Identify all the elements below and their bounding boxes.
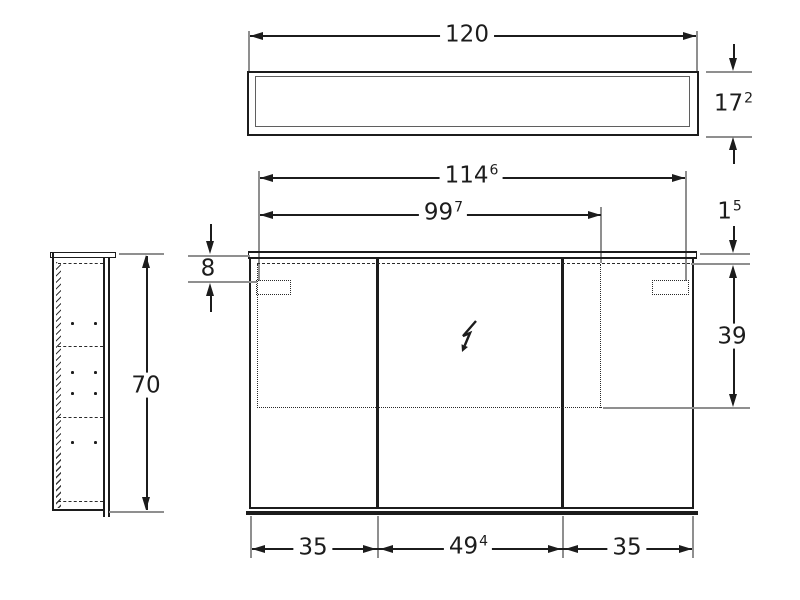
extension-line	[692, 516, 694, 558]
sensor-box-left	[256, 280, 291, 295]
door-divider	[561, 259, 564, 508]
front-cabinet-body	[249, 259, 694, 509]
arrowhead-up-icon	[206, 283, 214, 296]
dimension-line-8	[210, 224, 212, 241]
shelf-line	[58, 263, 103, 264]
extension-line	[377, 516, 379, 558]
shelf-pin-hole	[71, 392, 74, 395]
extension-line	[696, 31, 698, 71]
dim-door-center-label: 494	[444, 534, 492, 559]
arrowhead-down-icon	[729, 240, 737, 253]
shelf-pin-hole	[71, 441, 74, 444]
arrowhead-left-icon	[252, 545, 265, 553]
dimension-line-172	[733, 44, 735, 59]
arrowhead-right-icon	[679, 545, 692, 553]
arrowhead-down-icon	[729, 58, 737, 71]
arrowhead-down-icon	[206, 241, 214, 254]
dim-side-height-label: 70	[126, 373, 165, 398]
extension-line	[188, 281, 257, 283]
arrowhead-right-icon	[683, 32, 696, 40]
shelf-line	[58, 501, 103, 502]
dim-light-width-label: 997	[419, 200, 467, 225]
shelf-pin-hole	[94, 322, 97, 325]
dimension-line-172	[733, 150, 735, 164]
shelf-pin-hole	[94, 441, 97, 444]
dimension-line-8	[210, 296, 212, 312]
dimension-line-15	[733, 226, 735, 240]
arrowhead-right-icon	[548, 545, 561, 553]
extension-line	[603, 407, 750, 409]
side-view-bottom	[52, 509, 105, 511]
extension-line	[109, 511, 164, 513]
sensor-box-right	[652, 280, 689, 295]
arrowhead-right-icon	[363, 545, 376, 553]
extension-line	[562, 516, 564, 558]
shelf-pin-hole	[71, 371, 74, 374]
side-view-back-hatch	[56, 262, 61, 508]
door-divider	[376, 259, 379, 508]
arrowhead-up-icon	[142, 255, 150, 268]
dim-mirror-zone-height-label: 39	[712, 324, 751, 349]
front-cabinet-base	[246, 511, 698, 515]
shelf-pin-hole	[94, 371, 97, 374]
interior-top-dashed-line	[257, 263, 690, 264]
arrowhead-right-icon	[672, 174, 685, 182]
arrowhead-left-icon	[380, 545, 393, 553]
arrowhead-down-icon	[142, 497, 150, 510]
side-view-mirror-door	[103, 258, 110, 517]
extension-line	[700, 253, 750, 255]
top-view-mirror-door-edge	[255, 76, 690, 127]
arrowhead-up-icon	[729, 137, 737, 150]
arrowhead-left-icon	[260, 211, 273, 219]
mirror-zone-right-dotted	[600, 264, 601, 408]
arrowhead-left-icon	[565, 545, 578, 553]
arrowhead-right-icon	[588, 211, 601, 219]
dim-front-width-label: 1146	[440, 163, 503, 188]
dim-top-depth-label: 172	[709, 91, 757, 116]
technical-drawing-mirror-cabinet: 120 172 70	[0, 0, 800, 600]
dim-door-left-label: 35	[293, 535, 332, 560]
shelf-line	[58, 417, 103, 418]
arrowhead-up-icon	[729, 265, 737, 278]
arrowhead-left-icon	[260, 174, 273, 182]
extension-line	[691, 263, 750, 265]
arrowhead-left-icon	[250, 32, 263, 40]
dim-top-profile-label: 15	[712, 199, 746, 224]
shelf-line	[58, 346, 103, 347]
dim-top-width-label: 120	[440, 22, 494, 47]
dim-sensor-offset-label: 8	[196, 256, 221, 281]
arrowhead-down-icon	[729, 394, 737, 407]
extension-line	[706, 71, 752, 73]
shelf-pin-hole	[94, 392, 97, 395]
shelf-pin-hole	[71, 322, 74, 325]
mirror-zone-bottom-dotted	[257, 407, 602, 408]
lightning-bolt-icon	[456, 320, 482, 354]
side-view-back-wall	[52, 252, 54, 511]
front-top-light-profile	[248, 251, 697, 259]
dim-door-right-label: 35	[607, 535, 646, 560]
